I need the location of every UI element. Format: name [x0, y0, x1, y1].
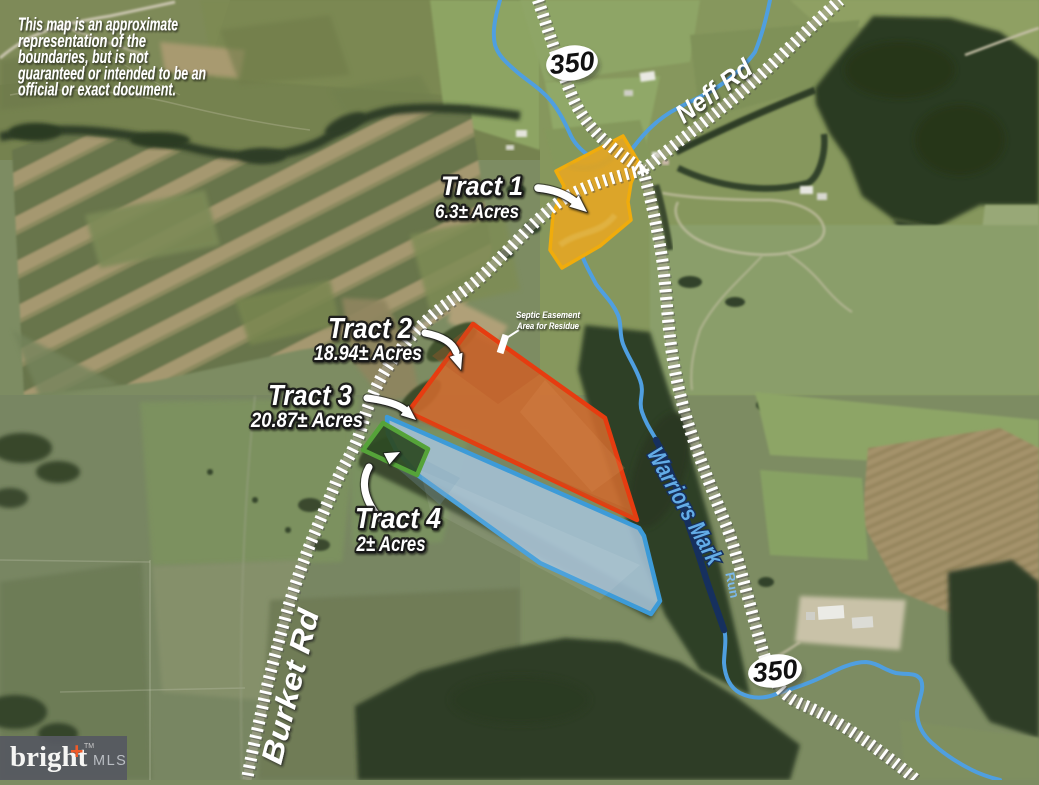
svg-text:MLS: MLS: [93, 753, 127, 769]
svg-text:2± Acres: 2± Acres: [356, 533, 426, 556]
svg-text:6.3± Acres: 6.3± Acres: [435, 201, 519, 223]
svg-text:+: +: [70, 738, 83, 764]
svg-text:Tract 4: Tract 4: [355, 503, 441, 535]
svg-text:Area for Residue: Area for Residue: [516, 321, 579, 332]
svg-text:Tract 1: Tract 1: [441, 171, 523, 201]
svg-text:350: 350: [751, 654, 799, 689]
svg-text:official or exact document.: official or exact document.: [18, 80, 176, 100]
svg-text:Tract 3: Tract 3: [268, 380, 352, 412]
svg-text:Septic Easement: Septic Easement: [516, 310, 581, 321]
svg-text:Tract 2: Tract 2: [328, 313, 412, 345]
svg-text:20.87± Acres: 20.87± Acres: [250, 409, 363, 432]
svg-text:18.94± Acres: 18.94± Acres: [314, 342, 422, 365]
svg-text:350: 350: [548, 46, 596, 81]
svg-text:TM: TM: [84, 743, 94, 750]
